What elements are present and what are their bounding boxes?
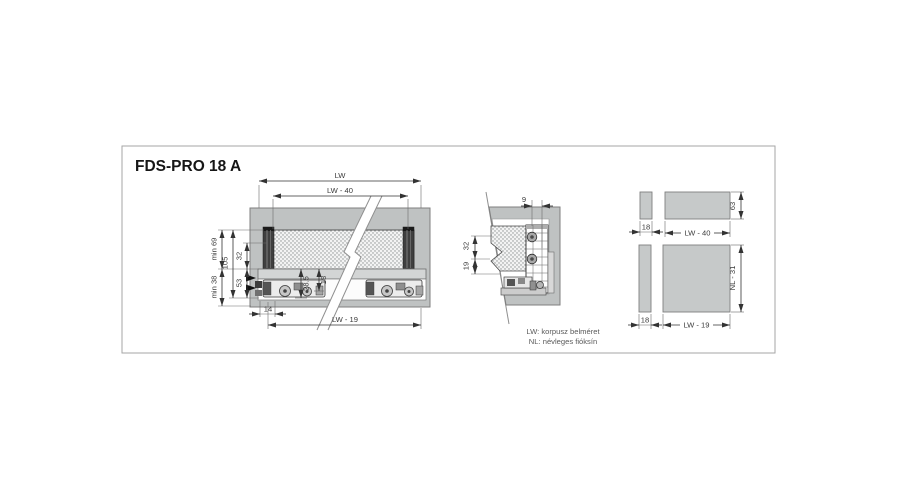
rear-bracket [403,227,414,271]
front-carriage-mechanism [263,280,325,297]
cutting-panel-top [665,192,730,219]
front-catch [255,281,262,288]
dim-label-section-32: 32 [462,242,471,250]
dim-label-lw40: LW - 40 [327,186,353,195]
cutting-panel-bottom [663,245,730,312]
dim-label-lw: LW [335,171,347,180]
cutting-strip-bottom [639,245,651,312]
legend-lw: LW: korpusz belméret [526,327,600,336]
page-title: FDS-PRO 18 A [135,158,241,175]
dim-label-min69: min 69 [210,238,219,261]
dim-label-min38: min 38 [210,276,219,299]
dim-label-bottom-lw19: LW - 19 [683,321,709,330]
dim-label-18: 18 [319,276,328,284]
cutting-strip-top [640,192,652,219]
front-bracket [263,227,274,271]
dim-label-63: 63 [728,202,737,210]
dim-label-32: 32 [235,252,244,260]
technical-diagram: FDS-PRO 18 A [0,0,900,500]
dim-label-top-lw40: LW - 40 [684,229,710,238]
drawer-side-panel [266,230,414,269]
dim-label-nl31: NL - 31 [728,266,737,291]
dim-label-lw19: LW - 19 [332,315,358,324]
legend-nl: NL: névleges fióksín [529,337,597,346]
dim-label-53: 53 [235,279,244,287]
dim-label-bottom-18: 18 [641,316,649,325]
dim-label-9: 9 [522,195,526,204]
rear-carriage-mechanism [366,280,423,297]
dim-label-28-5: 28.5 [302,276,311,291]
technical-drawing-page: FDS-PRO 18 A [0,0,900,500]
dim-label-105: 105 [221,257,230,270]
dim-label-top-18: 18 [642,223,650,232]
dim-label-section-19: 19 [462,262,471,270]
front-catch-lower [255,290,262,296]
